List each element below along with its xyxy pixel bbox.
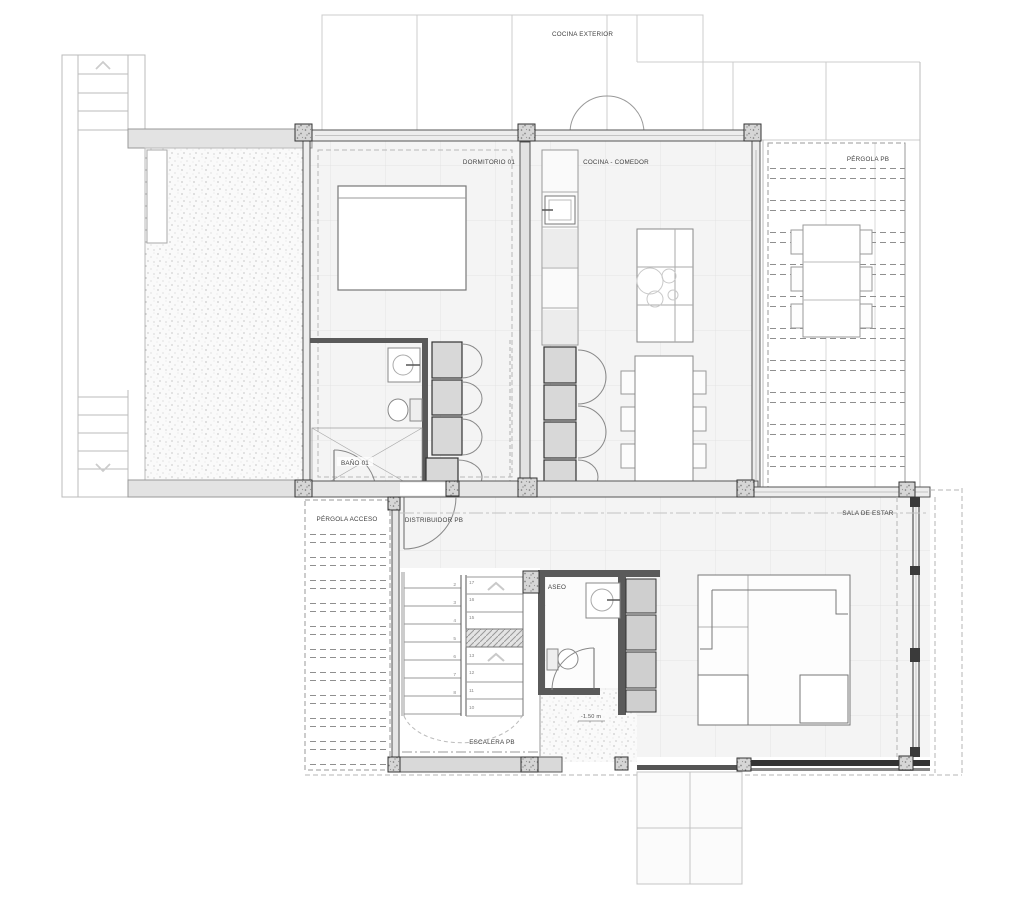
- kitchen-counter: [542, 150, 578, 345]
- step-number: 6: [453, 654, 456, 660]
- step-number: 17: [469, 580, 475, 586]
- step-number: 10: [469, 705, 475, 711]
- living-room-sala-de-estar: [698, 575, 850, 725]
- floor-plan-svg: COCINA EXTERIOR DORMITORIO 01 COCINA - C…: [0, 0, 1024, 919]
- gravel-area: [145, 148, 308, 480]
- label-cocina-exterior: COCINA EXTERIOR: [552, 31, 613, 38]
- aseo-sink: [586, 583, 620, 618]
- terrace-wall-top: [128, 129, 312, 148]
- pergola-acceso: [305, 500, 390, 770]
- step-number: 13: [469, 653, 475, 659]
- label-aseo: ASEO: [548, 584, 566, 591]
- step-number: 16: [469, 597, 475, 603]
- sofa: [698, 575, 850, 725]
- step-number: 2: [453, 582, 456, 588]
- step-number: 7: [453, 672, 456, 678]
- pantry-closets: [544, 347, 576, 490]
- stair-landing-hatch: [466, 629, 523, 647]
- label-distribuidor-pb: DISTRIBUIDOR PB: [405, 517, 463, 524]
- step-number: 5: [453, 636, 456, 642]
- outdoor-dining-table: [791, 225, 872, 337]
- step-number: 8: [453, 690, 456, 696]
- step-number: 15: [469, 615, 475, 621]
- wall-central: [520, 142, 530, 497]
- aseo-wall: [545, 688, 600, 695]
- kitchen-island: [637, 229, 693, 342]
- label-pergola-pb: PÉRGOLA PB: [847, 154, 889, 163]
- left-exterior-stair: [62, 55, 145, 497]
- step-number: 11: [469, 688, 474, 694]
- dining-set: [621, 356, 706, 487]
- label-pergola-acceso: PÉRGOLA ACCESO: [317, 514, 378, 523]
- dining-table: [635, 356, 693, 487]
- gravel-terrace: [128, 129, 312, 497]
- pergola-acceso-beams: [307, 528, 388, 766]
- aseo-wall: [538, 577, 545, 695]
- label-bano-01: BAÑO 01: [341, 458, 369, 467]
- label-dormitorio-01: DORMITORIO 01: [463, 159, 515, 166]
- planter: [147, 150, 167, 243]
- aseo-closets: [626, 579, 656, 712]
- toilet: [388, 399, 422, 421]
- label-cocina-comedor: COCINA - COMEDOR: [583, 159, 649, 166]
- bottom-paving-grid: [637, 772, 742, 884]
- bed: [338, 186, 466, 290]
- pergola-pb: [763, 140, 905, 497]
- terrace-wall-bottom: [128, 480, 312, 497]
- wall-left-lower: [392, 497, 399, 772]
- wall-left: [303, 130, 310, 497]
- step-number: 12: [469, 670, 475, 676]
- bathroom-wall: [310, 338, 428, 343]
- wall-sala-bottom: [637, 765, 742, 770]
- label-escalera-pb: ESCALERA PB: [469, 739, 515, 746]
- bathroom-sink: [388, 348, 420, 382]
- label-nivel: -1.50 m: [581, 714, 602, 720]
- floor-plan-page: COCINA EXTERIOR DORMITORIO 01 COCINA - C…: [0, 0, 1024, 919]
- aseo-wall: [538, 570, 660, 577]
- step-number: 3: [453, 600, 456, 606]
- step-number: 4: [453, 618, 456, 624]
- aseo-toilet: [547, 649, 578, 670]
- label-sala-de-estar: SALA DE ESTAR: [842, 510, 893, 517]
- kitchen-sink: [542, 196, 575, 224]
